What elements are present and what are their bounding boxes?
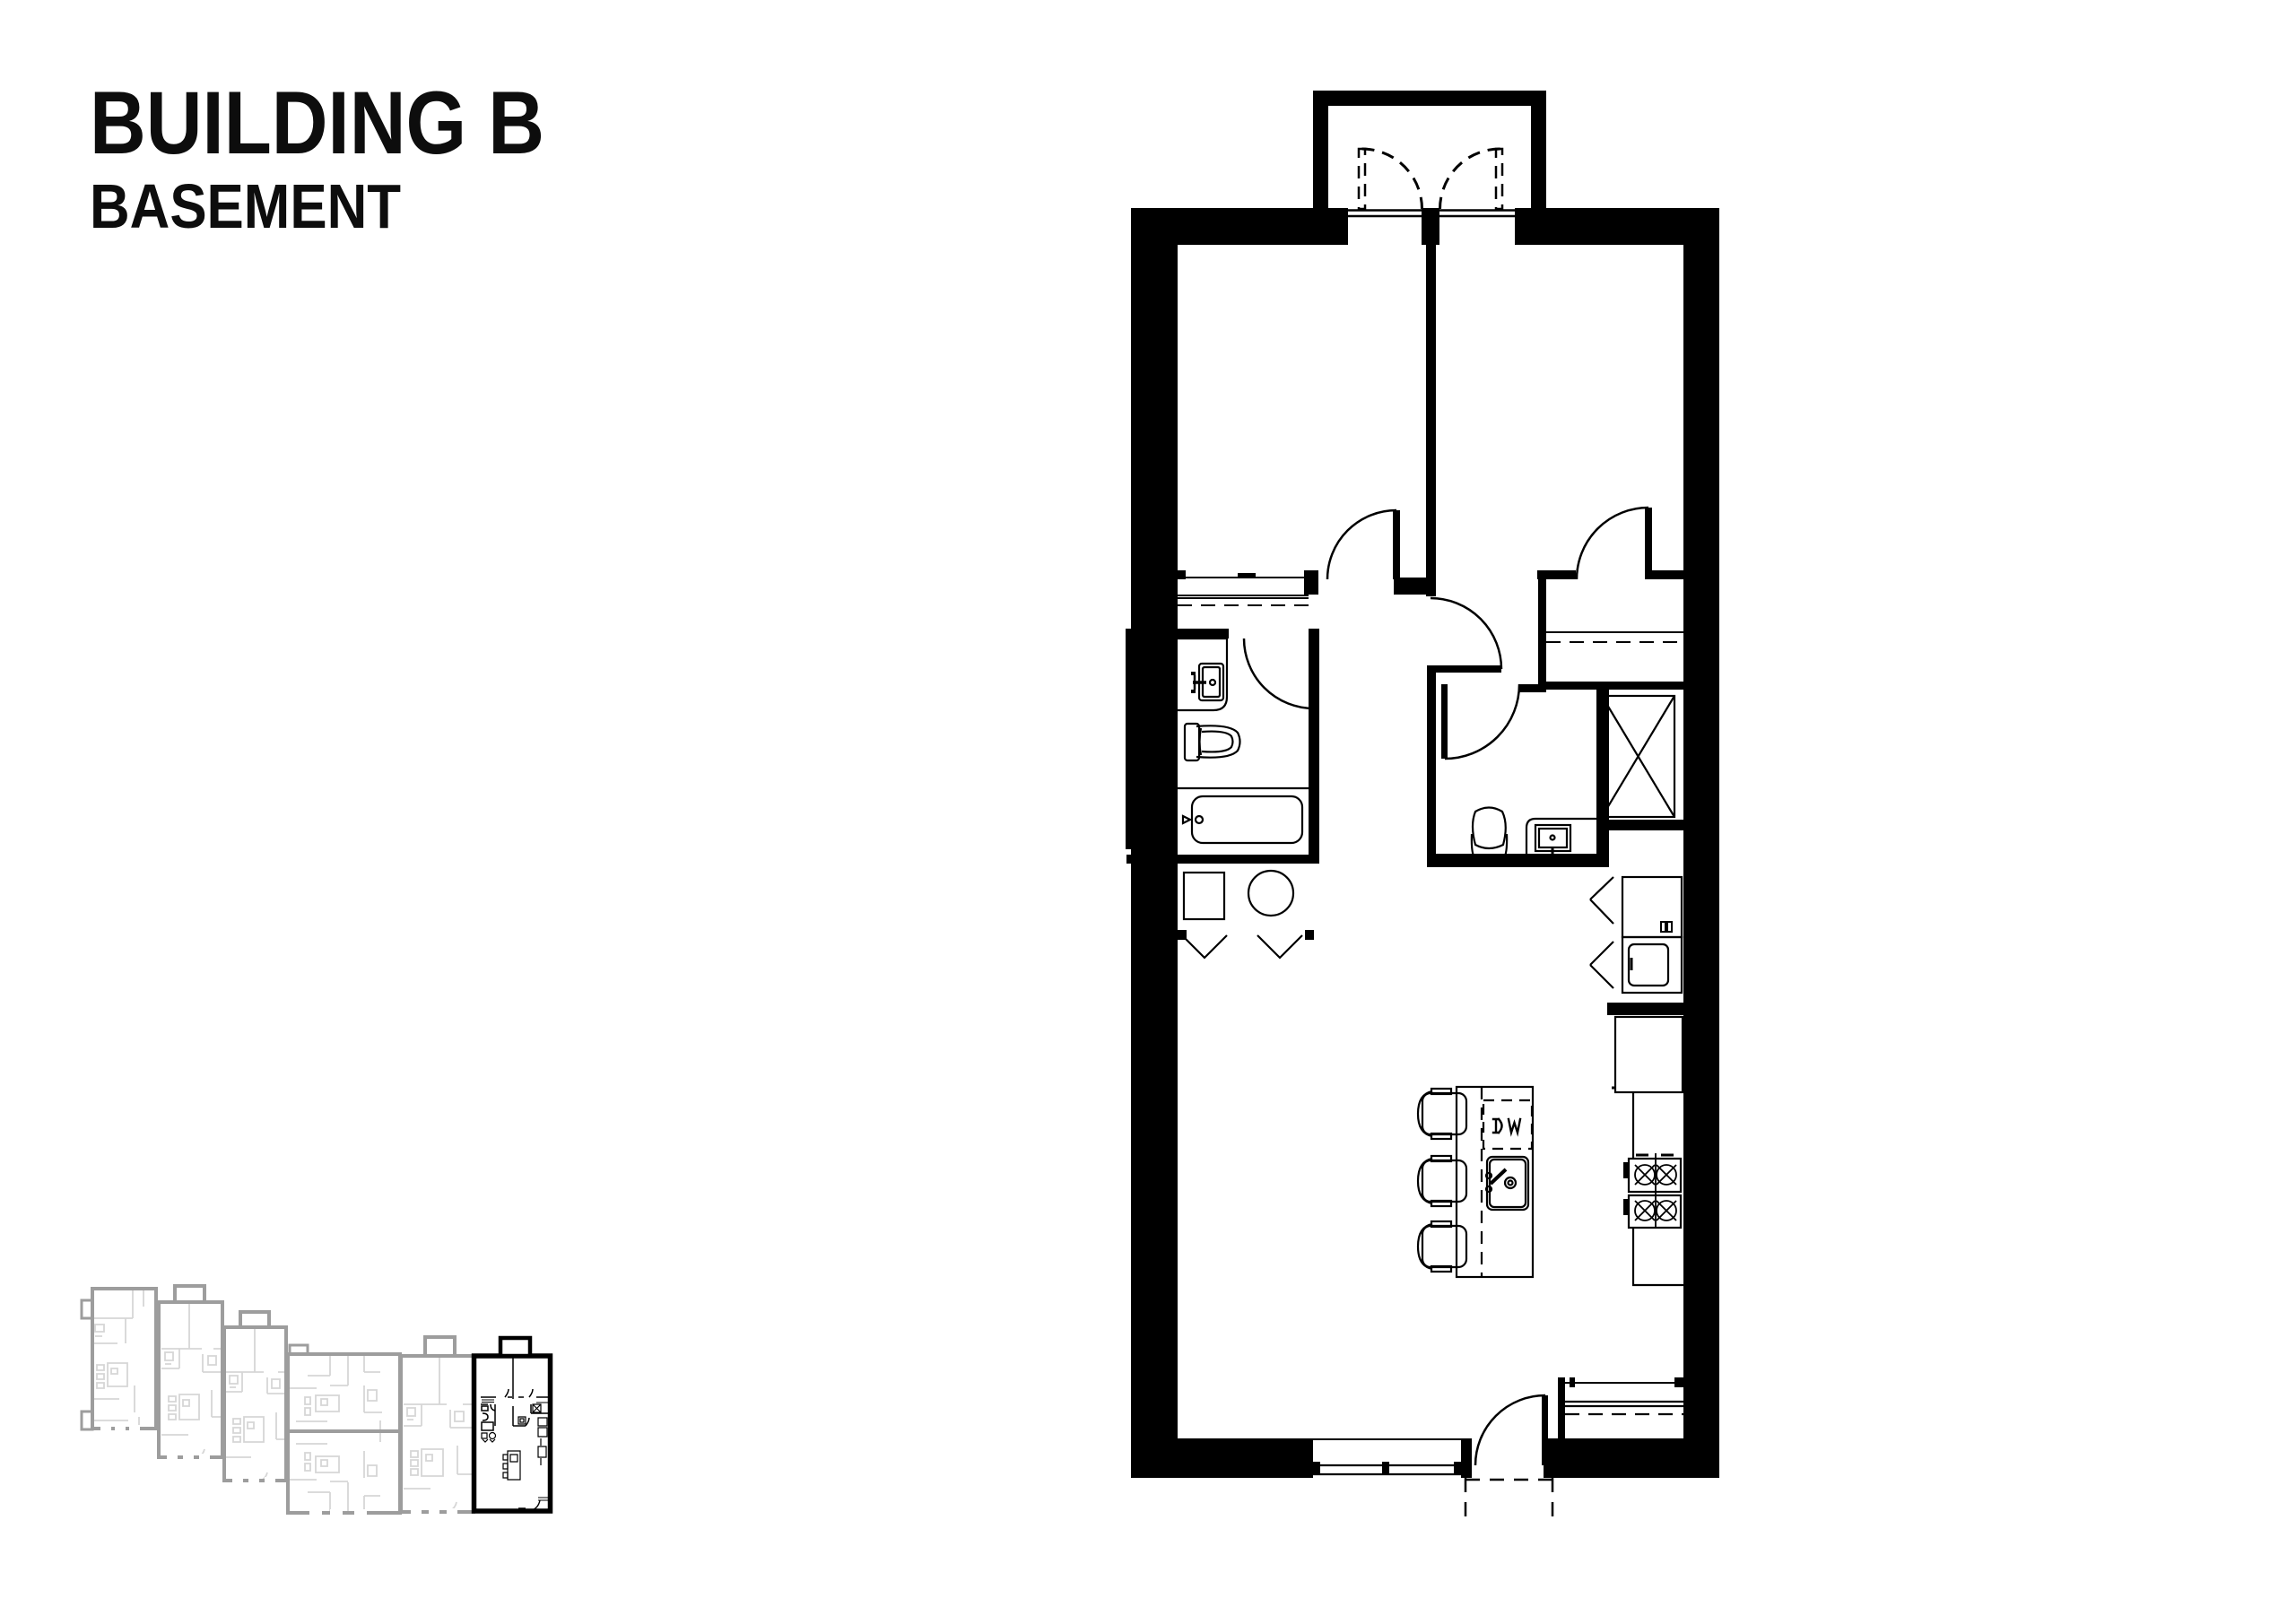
svg-text:BASEMENT: BASEMENT [90, 171, 401, 241]
svg-text:BUILDING B: BUILDING B [90, 73, 544, 172]
